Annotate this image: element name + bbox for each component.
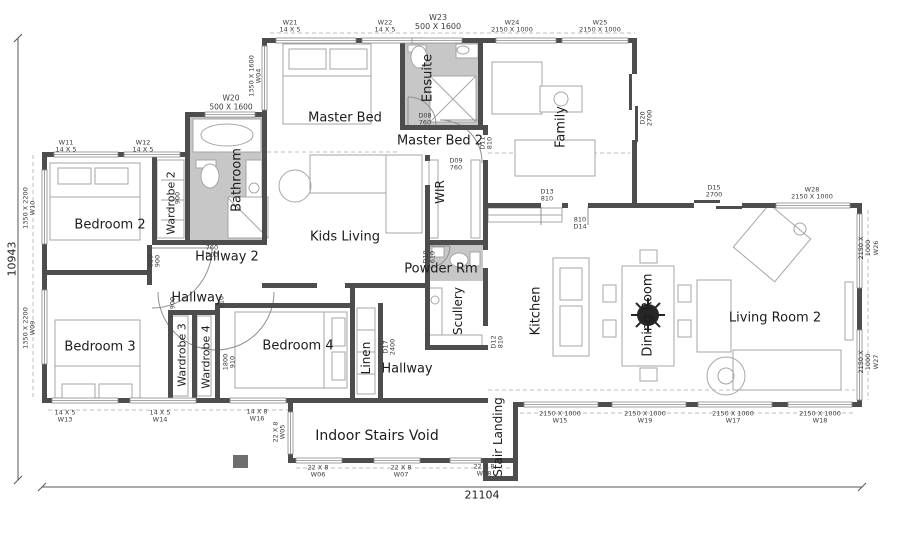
wall-segment: [215, 303, 355, 308]
furniture-item: [432, 247, 444, 257]
wall-segment: [425, 345, 488, 350]
furniture-item: [330, 49, 367, 69]
furniture-item: [697, 280, 731, 352]
wall-segment: [483, 476, 518, 481]
furniture-item: [470, 252, 480, 266]
sliding-door-panel: [635, 106, 638, 142]
wall-segment: [483, 268, 488, 326]
wall-segment: [742, 203, 778, 208]
wall-segment: [483, 203, 541, 208]
post: [233, 455, 248, 468]
dimension-label-bottom: 21104: [465, 489, 500, 502]
wall-segment: [215, 303, 220, 403]
furniture-item: [386, 155, 422, 233]
wall-segment: [152, 240, 267, 245]
wall-segment: [400, 125, 488, 130]
furniture-item: [603, 285, 616, 302]
sliding-door-panel: [694, 200, 720, 203]
wall-segment: [345, 283, 427, 288]
wall-segment: [478, 38, 483, 129]
furniture-ellipse: [450, 253, 468, 267]
sliding-door-panel: [716, 206, 742, 209]
floor-plan: Master BedEnsuiteMaster Bed 2FamilyBathr…: [0, 0, 900, 543]
wall-segment: [425, 155, 430, 161]
furniture-ellipse: [201, 164, 219, 188]
wall-segment: [192, 310, 197, 400]
furniture-circle: [279, 170, 311, 202]
furniture-item: [678, 320, 691, 337]
furniture-item: [429, 160, 438, 238]
furniture-item: [58, 168, 91, 184]
wall-segment: [513, 402, 518, 481]
furniture-item: [95, 168, 128, 184]
wall-segment: [378, 303, 383, 398]
furniture-ellipse: [201, 124, 253, 146]
furniture-item: [62, 384, 95, 399]
wall-segment: [483, 208, 488, 250]
wall-segment: [632, 140, 637, 208]
furniture-item: [235, 312, 347, 388]
wall-segment: [632, 38, 637, 74]
furniture-item: [172, 316, 188, 396]
furniture-circle: [718, 368, 734, 384]
furniture-item: [603, 320, 616, 337]
furniture-item: [733, 350, 841, 390]
furniture-item: [197, 316, 211, 396]
wall-segment: [850, 203, 862, 208]
wall-segment: [168, 310, 218, 315]
furniture-item: [733, 204, 810, 282]
wall-segment: [400, 38, 405, 129]
furniture-item: [157, 160, 184, 238]
wall-segment: [185, 112, 190, 245]
wall-segment: [425, 185, 430, 288]
furniture-item: [289, 49, 326, 69]
wall-segment: [42, 270, 148, 275]
wall-segment: [262, 117, 267, 245]
sliding-door-panel: [629, 74, 632, 110]
furniture-ellipse: [457, 46, 469, 54]
dimension-label-left: 10943: [6, 242, 19, 277]
wall-segment: [483, 160, 488, 208]
furniture-item: [332, 318, 345, 346]
wall-segment: [262, 283, 317, 288]
wall-segment: [147, 245, 152, 285]
wall-segment: [350, 288, 355, 400]
furniture-item: [678, 285, 691, 302]
door-swing-arc: [152, 248, 212, 308]
furniture-item: [560, 306, 582, 346]
furniture-item: [640, 368, 657, 381]
furniture-item: [492, 62, 542, 114]
furniture-item: [515, 140, 595, 176]
wall-segment: [168, 310, 173, 400]
wall-segment: [588, 203, 694, 208]
furniture-item: [99, 384, 132, 399]
furniture-item: [471, 160, 480, 238]
wall-segment: [562, 203, 568, 208]
wall-segment: [483, 125, 488, 135]
furniture-item: [560, 268, 582, 300]
floor-plan-drawing: [0, 0, 900, 543]
furniture-item: [357, 308, 375, 394]
furniture-item: [640, 250, 657, 263]
wall-segment: [425, 288, 430, 348]
wall-segment: [152, 155, 157, 243]
furniture-ellipse: [411, 46, 427, 68]
furniture-item: [845, 282, 853, 340]
wall-segment: [425, 240, 487, 245]
furniture-item: [540, 86, 582, 112]
furniture-item: [332, 352, 345, 380]
